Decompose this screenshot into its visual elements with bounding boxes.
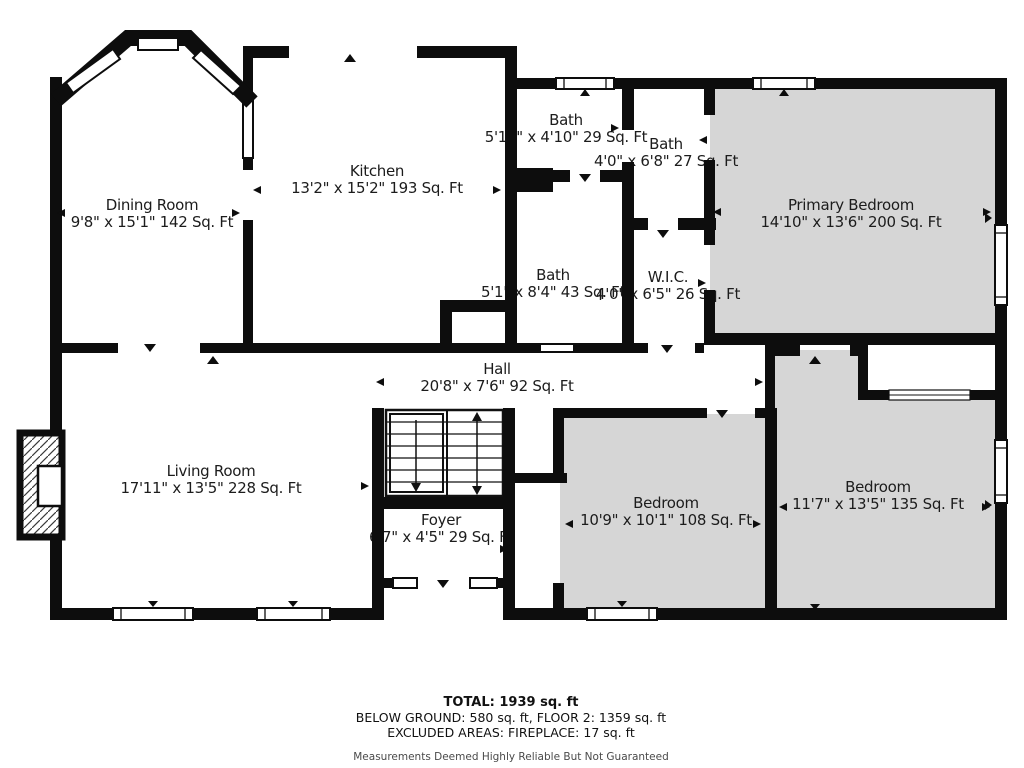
room-dims: 11'7" x 13'5" 135 Sq. Ft [792, 496, 964, 513]
room-dims: 20'8" x 7'6" 92 Sq. Ft [420, 378, 573, 395]
room-dims: 14'10" x 13'6" 200 Sq. Ft [760, 214, 941, 231]
room-dims: 17'11" x 13'5" 228 Sq. Ft [120, 480, 301, 497]
room-name: Bath [594, 136, 738, 153]
room-name: Hall [420, 361, 573, 378]
room-name: Foyer [369, 512, 513, 529]
room-label-wic: W.I.C. 4'0" x 6'5" 26 Sq. Ft [596, 269, 740, 302]
room-label-kitchen: Kitchen 13'2" x 15'2" 193 Sq. Ft [291, 163, 463, 196]
room-label-dining-room: Dining Room 9'8" x 15'1" 142 Sq. Ft [71, 197, 234, 230]
room-label-bath-top-right: Bath 4'0" x 6'8" 27 Sq. Ft [594, 136, 738, 169]
room-dims: 6'7" x 4'5" 29 Sq. Ft [369, 529, 513, 546]
room-label-living-room: Living Room 17'11" x 13'5" 228 Sq. Ft [120, 463, 301, 496]
room-dims: 13'2" x 15'2" 193 Sq. Ft [291, 180, 463, 197]
room-label-hall: Hall 20'8" x 7'6" 92 Sq. Ft [420, 361, 573, 394]
summary-footer: TOTAL: 1939 sq. ft BELOW GROUND: 580 sq.… [353, 695, 669, 763]
room-label-foyer: Foyer 6'7" x 4'5" 29 Sq. Ft [369, 512, 513, 545]
excluded-areas: EXCLUDED AREAS: FIREPLACE: 17 sq. ft [353, 727, 669, 740]
room-name: Bedroom [792, 479, 964, 496]
disclaimer: Measurements Deemed Highly Reliable But … [353, 751, 669, 763]
room-dims: 4'0" x 6'8" 27 Sq. Ft [594, 153, 738, 170]
room-name: Bath [485, 112, 648, 129]
room-name: Living Room [120, 463, 301, 480]
room-label-bedroom-middle: Bedroom 10'9" x 10'1" 108 Sq. Ft [580, 495, 752, 528]
room-name: Primary Bedroom [760, 197, 941, 214]
room-dims: 9'8" x 15'1" 142 Sq. Ft [71, 214, 234, 231]
room-name: Bedroom [580, 495, 752, 512]
room-name: Kitchen [291, 163, 463, 180]
room-name: W.I.C. [596, 269, 740, 286]
floor-plan: Dining Room 9'8" x 15'1" 142 Sq. Ft Kitc… [0, 0, 1024, 768]
room-name: Dining Room [71, 197, 234, 214]
room-labels: Dining Room 9'8" x 15'1" 142 Sq. Ft Kitc… [0, 0, 1024, 768]
area-breakdown: BELOW GROUND: 580 sq. ft, FLOOR 2: 1359 … [353, 712, 669, 725]
room-dims: 4'0" x 6'5" 26 Sq. Ft [596, 286, 740, 303]
room-label-bedroom-right: Bedroom 11'7" x 13'5" 135 Sq. Ft [792, 479, 964, 512]
room-label-primary-bedroom: Primary Bedroom 14'10" x 13'6" 200 Sq. F… [760, 197, 941, 230]
room-dims: 10'9" x 10'1" 108 Sq. Ft [580, 512, 752, 529]
total-area: TOTAL: 1939 sq. ft [353, 695, 669, 710]
